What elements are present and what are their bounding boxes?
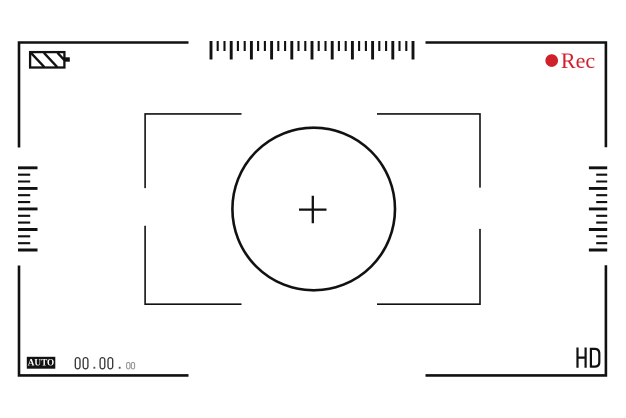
svg-text:AUTO: AUTO bbox=[28, 358, 54, 368]
svg-text:Rec: Rec bbox=[561, 48, 595, 73]
